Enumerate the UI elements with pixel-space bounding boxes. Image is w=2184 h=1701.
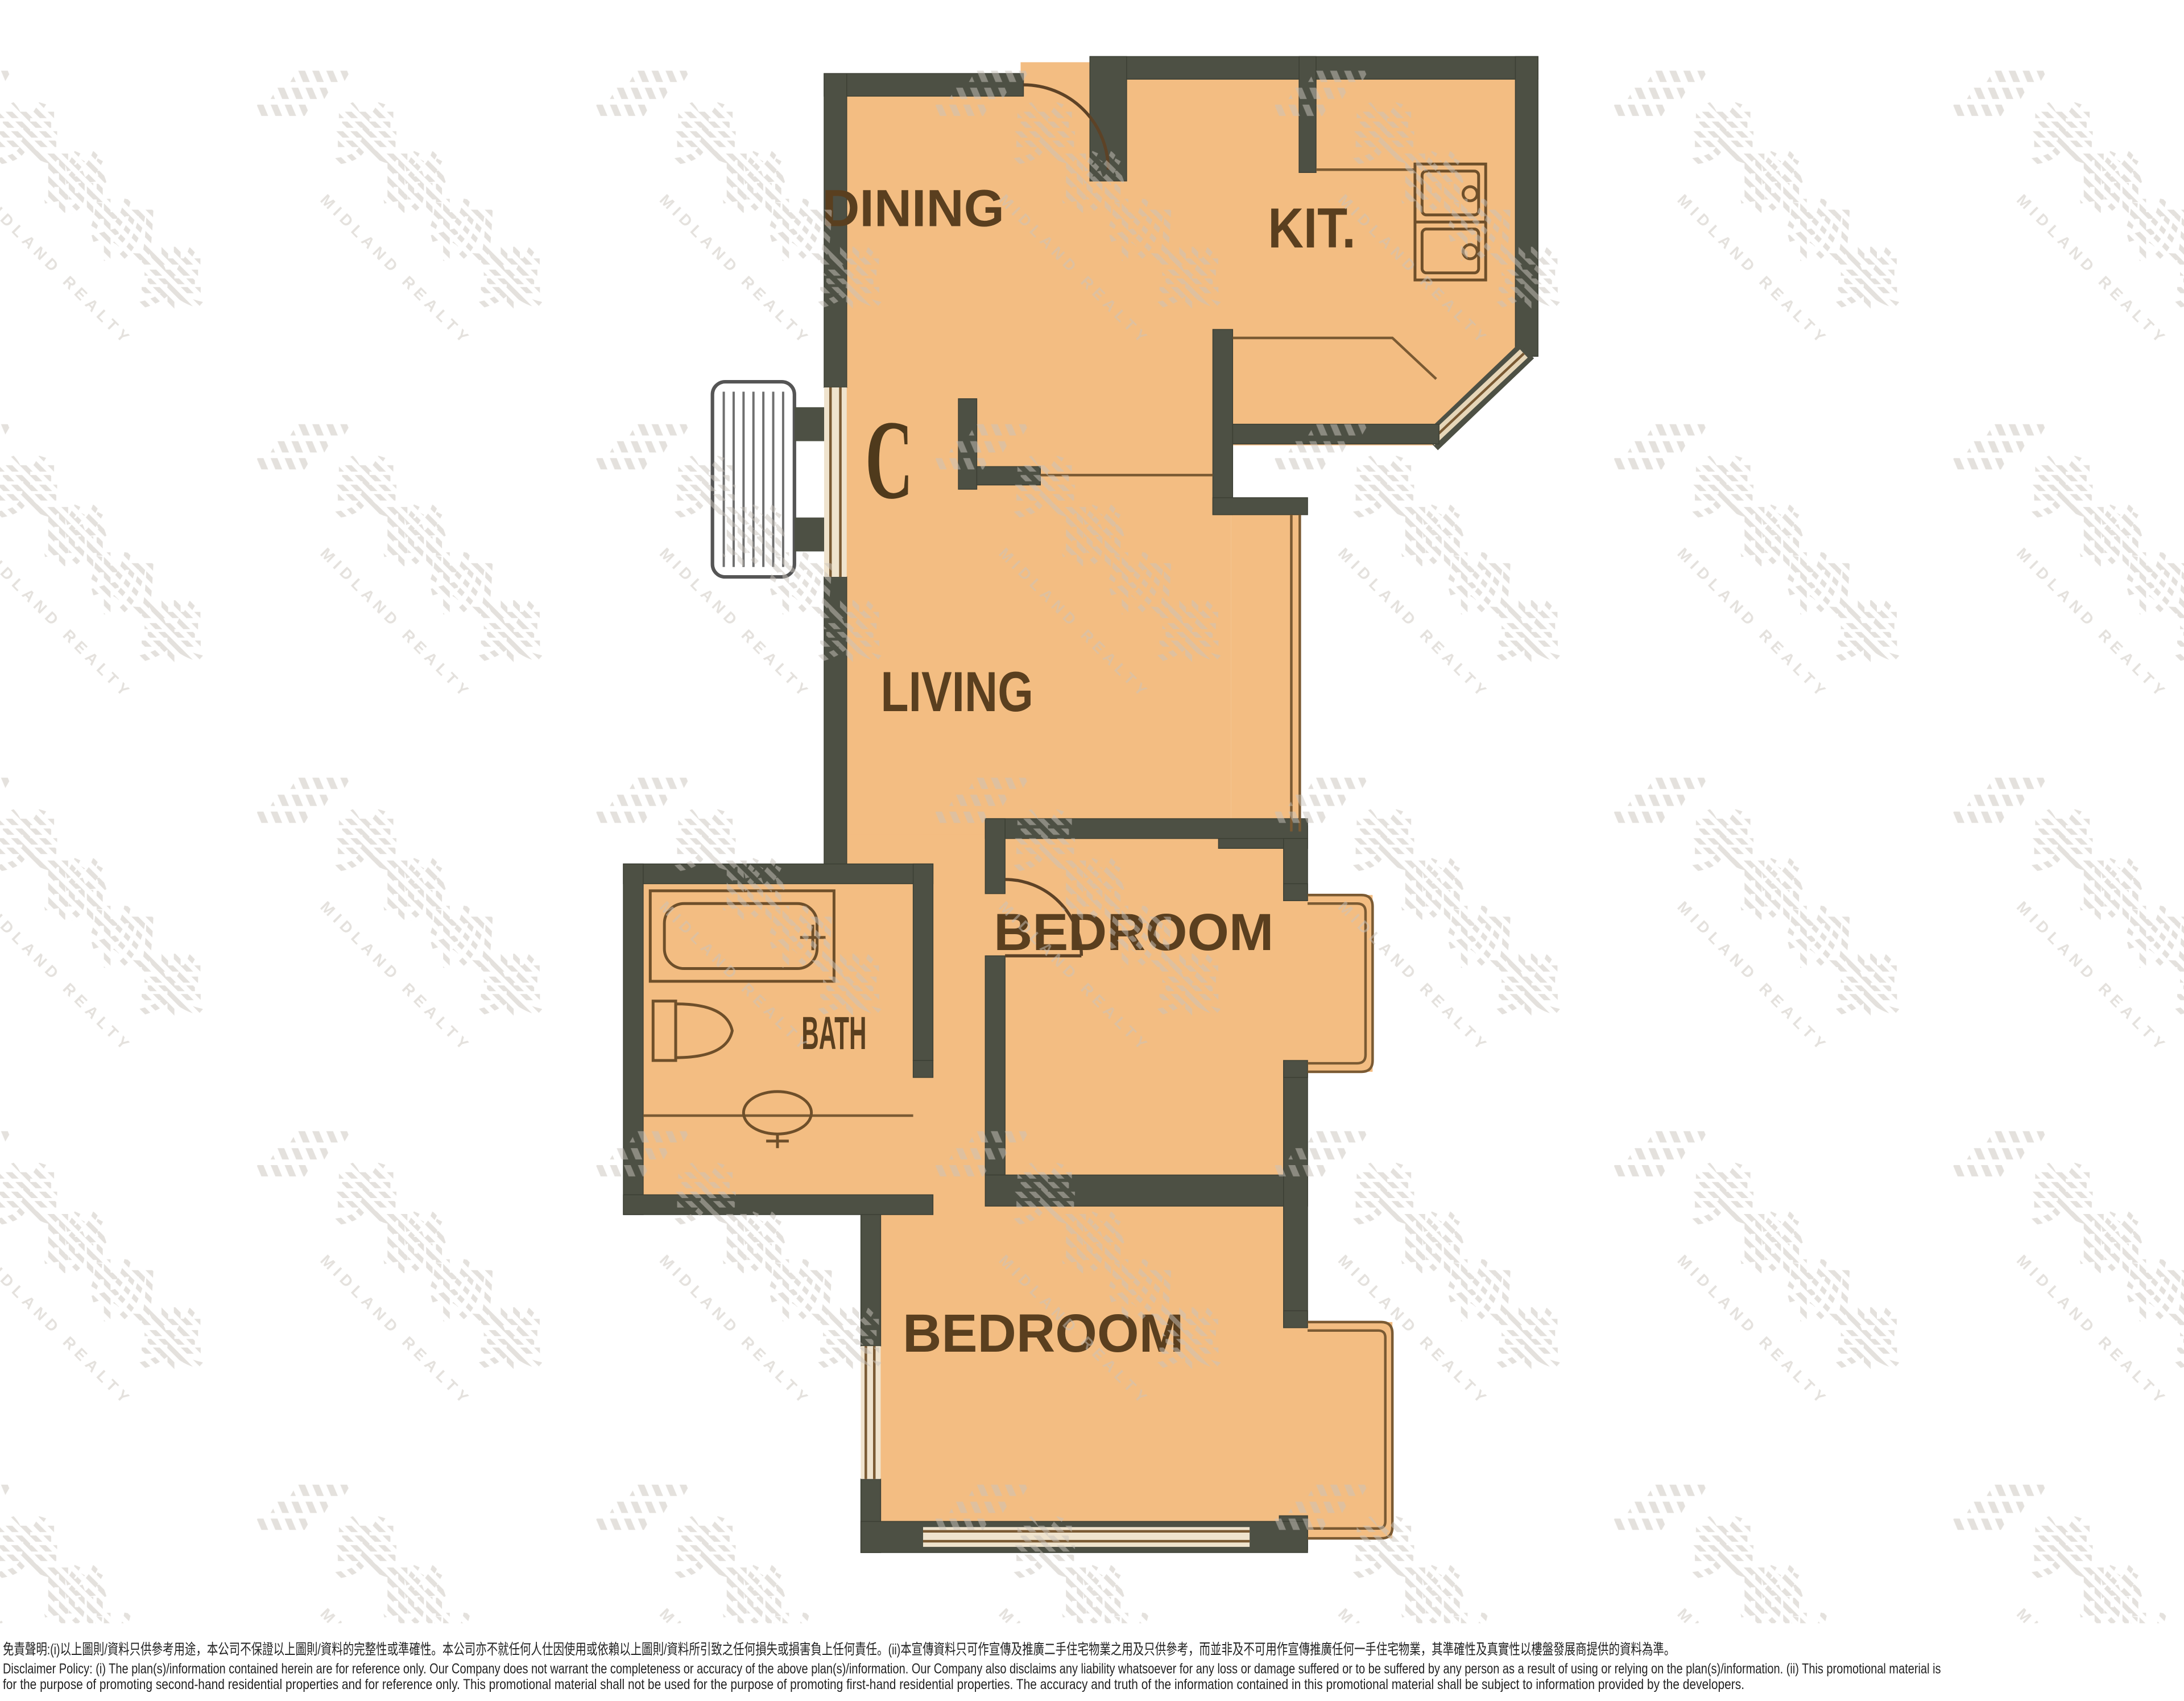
watermark-overlay bbox=[0, 0, 2184, 1623]
disclaimer: 免責聲明:(i)以上圖則/資料只供參考用途，本公司不保證以上圖則/資料的完整性或… bbox=[3, 1641, 1941, 1692]
disclaimer-line-3: for the purpose of promoting second-hand… bbox=[3, 1677, 1744, 1692]
floor-plan-page: 美 聯 物 業 MIDLAND REALTY bbox=[0, 0, 2184, 1701]
disclaimer-line-1: 免責聲明:(i)以上圖則/資料只供參考用途，本公司不保證以上圖則/資料的完整性或… bbox=[3, 1641, 1675, 1658]
disclaimer-line-2: Disclaimer Policy: (i) The plan(s)/infor… bbox=[3, 1662, 1941, 1677]
floor-plan-svg: 美 聯 物 業 MIDLAND REALTY bbox=[0, 0, 2184, 1701]
